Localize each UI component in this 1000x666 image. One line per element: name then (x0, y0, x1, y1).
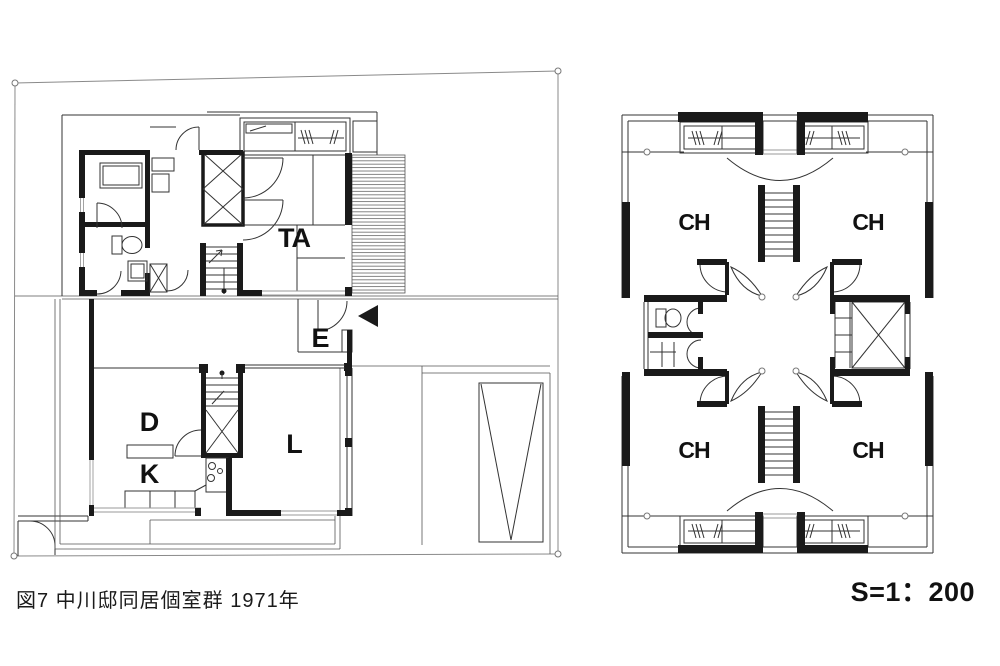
survey-point-icon (11, 553, 17, 559)
survey-point-icon (12, 80, 18, 86)
figure-canvas: TA E D K L (0, 0, 1000, 666)
survey-point-icon (555, 68, 561, 74)
floor-plan-drawing: TA E D K L (0, 0, 1000, 666)
window-pin-icon (902, 513, 908, 519)
room-label-ch-ne: CH (852, 209, 884, 235)
stairs-south (765, 412, 795, 475)
window-pin-icon (644, 149, 650, 155)
hall-doors (700, 264, 860, 404)
dining-table (127, 445, 173, 458)
closet-ta (240, 118, 350, 155)
room-label-k: K (140, 459, 160, 489)
hall-door (150, 127, 199, 150)
engawa-deck (352, 155, 405, 293)
room-label-ch-sw: CH (678, 437, 710, 463)
room-label-d: D (140, 407, 159, 437)
room-label-ch-se: CH (852, 437, 884, 463)
toilet (112, 236, 122, 254)
figure-caption: 図7 中川邸同居個室群 1971年 (16, 589, 300, 612)
stairs-upper (200, 243, 243, 296)
room-label-e: E (311, 323, 328, 353)
carport (479, 383, 543, 542)
scale-label: S=1：200 (851, 577, 975, 607)
room-label-ch-nw: CH (678, 209, 710, 235)
gate (18, 516, 88, 556)
first-floor-plan: TA E D K L (11, 68, 561, 559)
second-floor-plan: CH CH CH CH (622, 112, 933, 553)
door-arc-south (727, 489, 833, 512)
bathtub (100, 163, 142, 188)
bath-block (79, 150, 188, 296)
shaft-wing (835, 302, 910, 369)
survey-point-icon (555, 551, 561, 557)
bearing-walls (622, 112, 933, 553)
entrance-arrow-icon (358, 305, 378, 327)
room-label-ta: TA (278, 223, 310, 253)
door-arc-north (727, 158, 833, 181)
stairs-north (765, 193, 795, 256)
kitchen-counter (125, 491, 195, 508)
room-label-l: L (286, 429, 302, 459)
entrance (298, 299, 378, 371)
storage-closet (203, 153, 243, 225)
window-pin-icon (902, 149, 908, 155)
window-pin-icon (644, 513, 650, 519)
